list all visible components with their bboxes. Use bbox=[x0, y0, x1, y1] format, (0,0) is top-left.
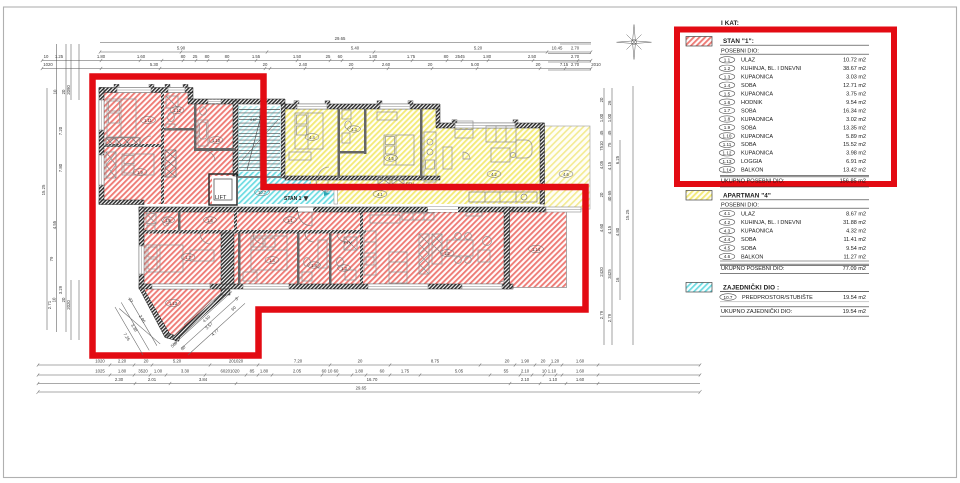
svg-text:4.2: 4.2 bbox=[724, 220, 731, 225]
svg-text:20: 20 bbox=[536, 62, 541, 67]
svg-text:5.20: 5.20 bbox=[173, 359, 182, 364]
svg-text:1.4: 1.4 bbox=[724, 83, 731, 88]
svg-text:38.67 m2: 38.67 m2 bbox=[843, 66, 866, 72]
svg-text:16.70: 16.70 bbox=[367, 377, 378, 382]
svg-text:1.13: 1.13 bbox=[169, 301, 178, 306]
svg-text:10.45: 10.45 bbox=[552, 46, 563, 51]
svg-text:1.14: 1.14 bbox=[532, 247, 541, 252]
svg-text:POSEBNI DIO:: POSEBNI DIO: bbox=[721, 202, 759, 208]
svg-text:15.25: 15.25 bbox=[41, 184, 46, 195]
svg-text:1.90: 1.90 bbox=[521, 359, 530, 364]
svg-text:2420: 2420 bbox=[599, 267, 604, 277]
svg-text:20: 20 bbox=[428, 62, 433, 67]
svg-text:55: 55 bbox=[504, 369, 509, 374]
svg-text:7.15: 7.15 bbox=[560, 62, 569, 67]
svg-text:PTV: PTV bbox=[344, 240, 352, 245]
svg-text:1.80: 1.80 bbox=[483, 54, 492, 59]
svg-text:1.10: 1.10 bbox=[723, 134, 732, 139]
svg-text:25: 25 bbox=[326, 54, 331, 59]
svg-text:60: 60 bbox=[338, 54, 343, 59]
svg-text:10.7: 10.7 bbox=[258, 190, 267, 195]
svg-text:1.10: 1.10 bbox=[212, 138, 221, 143]
svg-text:1.60: 1.60 bbox=[137, 54, 146, 59]
svg-text:20: 20 bbox=[144, 359, 149, 364]
svg-text:20: 20 bbox=[599, 97, 604, 102]
svg-text:4.6: 4.6 bbox=[724, 254, 731, 259]
svg-text:ULAZ: ULAZ bbox=[741, 211, 756, 217]
svg-text:31.88 m2: 31.88 m2 bbox=[843, 220, 866, 226]
svg-text:8.75: 8.75 bbox=[431, 359, 440, 364]
svg-text:3425: 3425 bbox=[607, 269, 612, 279]
svg-text:1.80: 1.80 bbox=[355, 369, 364, 374]
svg-text:4.1: 4.1 bbox=[724, 211, 731, 216]
svg-text:1.11: 1.11 bbox=[144, 118, 152, 123]
svg-text:1.5: 1.5 bbox=[724, 91, 731, 96]
svg-text:2090: 2090 bbox=[66, 85, 71, 95]
svg-text:11.41 m2: 11.41 m2 bbox=[843, 237, 866, 243]
svg-text:KUPAONICA: KUPAONICA bbox=[741, 151, 773, 157]
svg-text:1.8: 1.8 bbox=[724, 117, 731, 122]
svg-text:4.05: 4.05 bbox=[599, 160, 604, 169]
svg-text:1.13: 1.13 bbox=[723, 159, 732, 164]
svg-text:10.7: 10.7 bbox=[724, 295, 733, 300]
svg-text:SOBA: SOBA bbox=[741, 125, 757, 131]
svg-text:4.5: 4.5 bbox=[724, 246, 731, 251]
svg-text:4.15: 4.15 bbox=[607, 225, 612, 234]
svg-text:19.54 m2: 19.54 m2 bbox=[843, 309, 866, 315]
svg-text:UKUPNO POSEBNI DIO:: UKUPNO POSEBNI DIO: bbox=[721, 178, 785, 184]
svg-text:4.3: 4.3 bbox=[351, 127, 357, 132]
svg-text:4.2: 4.2 bbox=[491, 172, 497, 177]
svg-text:SOBA: SOBA bbox=[741, 246, 757, 252]
svg-text:10: 10 bbox=[53, 89, 58, 94]
svg-text:5.20: 5.20 bbox=[474, 46, 483, 51]
svg-text:9.54 m2: 9.54 m2 bbox=[846, 246, 866, 252]
svg-text:UKUPNO POSEBNI DIO:: UKUPNO POSEBNI DIO: bbox=[721, 266, 785, 272]
svg-text:I KAT:: I KAT: bbox=[721, 20, 739, 27]
svg-text:1.9: 1.9 bbox=[137, 170, 143, 175]
svg-text:2.79: 2.79 bbox=[607, 313, 612, 322]
svg-text:KUPAONICA: KUPAONICA bbox=[741, 134, 773, 140]
svg-text:1.9: 1.9 bbox=[724, 125, 731, 130]
svg-text:1.20: 1.20 bbox=[551, 359, 560, 364]
svg-text:3.03 m2: 3.03 m2 bbox=[846, 75, 866, 81]
svg-text:1.60: 1.60 bbox=[576, 377, 585, 382]
svg-text:20: 20 bbox=[349, 62, 354, 67]
svg-text:7.80: 7.80 bbox=[58, 163, 63, 172]
svg-text:20: 20 bbox=[358, 359, 363, 364]
svg-text:45: 45 bbox=[607, 130, 612, 135]
svg-text:77.09 m2: 77.09 m2 bbox=[843, 266, 866, 272]
svg-text:3.30: 3.30 bbox=[181, 369, 190, 374]
svg-text:1025: 1025 bbox=[95, 369, 105, 374]
svg-text:ZAJEDNIČKI DIO :: ZAJEDNIČKI DIO : bbox=[723, 282, 779, 291]
svg-text:13.35 m2: 13.35 m2 bbox=[843, 125, 866, 131]
svg-text:16: 16 bbox=[615, 277, 620, 282]
svg-text:25: 25 bbox=[193, 54, 198, 59]
svg-text:2020: 2020 bbox=[66, 300, 71, 310]
svg-text:4.1: 4.1 bbox=[377, 192, 383, 197]
svg-text:1.3: 1.3 bbox=[341, 266, 347, 271]
svg-text:1.80: 1.80 bbox=[260, 369, 269, 374]
svg-text:20: 20 bbox=[505, 359, 510, 364]
svg-text:29.65: 29.65 bbox=[356, 386, 367, 391]
svg-text:3.02 m2: 3.02 m2 bbox=[846, 117, 866, 123]
svg-text:1.55: 1.55 bbox=[252, 54, 261, 59]
svg-text:1.12: 1.12 bbox=[173, 108, 182, 113]
svg-text:11.27 m2: 11.27 m2 bbox=[843, 254, 866, 260]
svg-text:4.4: 4.4 bbox=[724, 237, 731, 242]
svg-text:LIFT: LIFT bbox=[215, 195, 227, 201]
svg-text:1.7: 1.7 bbox=[724, 108, 731, 113]
svg-text:1.3: 1.3 bbox=[724, 74, 731, 79]
svg-text:1.4: 1.4 bbox=[269, 258, 275, 263]
svg-text:80: 80 bbox=[225, 54, 230, 59]
svg-text:4.4: 4.4 bbox=[309, 135, 315, 140]
svg-text:1.50: 1.50 bbox=[293, 54, 302, 59]
svg-text:2.79: 2.79 bbox=[599, 310, 604, 319]
svg-text:KUPAONICA: KUPAONICA bbox=[741, 117, 773, 123]
svg-text:1.8: 1.8 bbox=[311, 263, 317, 268]
svg-text:KUPAONICA: KUPAONICA bbox=[741, 75, 773, 81]
svg-text:1.14: 1.14 bbox=[723, 167, 732, 172]
svg-text:POSEBNI DIO:: POSEBNI DIO: bbox=[721, 48, 759, 54]
svg-text:1.11: 1.11 bbox=[723, 142, 732, 147]
svg-text:1.60: 1.60 bbox=[576, 359, 585, 364]
svg-text:2.20: 2.20 bbox=[118, 359, 127, 364]
svg-text:3.29: 3.29 bbox=[58, 285, 63, 294]
svg-text:20: 20 bbox=[263, 62, 268, 67]
svg-text:5.05: 5.05 bbox=[455, 369, 464, 374]
svg-text:5.40: 5.40 bbox=[351, 46, 360, 51]
svg-text:KUHINJA, BL. I DNEVNI: KUHINJA, BL. I DNEVNI bbox=[741, 220, 802, 226]
svg-text:STAN 1: STAN 1 bbox=[284, 196, 302, 202]
svg-text:1.6: 1.6 bbox=[207, 218, 213, 223]
svg-text:1.1: 1.1 bbox=[287, 218, 293, 223]
svg-text:BALKON: BALKON bbox=[741, 254, 763, 260]
svg-text:5.90: 5.90 bbox=[177, 46, 186, 51]
svg-text:SOBA: SOBA bbox=[741, 142, 757, 148]
svg-text:1.80: 1.80 bbox=[118, 369, 127, 374]
svg-text:1.12: 1.12 bbox=[723, 150, 732, 155]
svg-text:1.5: 1.5 bbox=[165, 218, 171, 223]
svg-text:2.50: 2.50 bbox=[528, 54, 537, 59]
svg-text:4.80: 4.80 bbox=[615, 227, 620, 236]
svg-text:2.10: 2.10 bbox=[521, 369, 530, 374]
svg-text:75: 75 bbox=[607, 142, 612, 147]
svg-text:10 1.10: 10 1.10 bbox=[542, 369, 557, 374]
svg-text:2.70: 2.70 bbox=[571, 54, 580, 59]
svg-text:2010: 2010 bbox=[591, 62, 601, 67]
svg-text:26: 26 bbox=[607, 100, 612, 105]
svg-text:8.67 m2: 8.67 m2 bbox=[846, 211, 866, 217]
svg-text:KUHINJA, BL. I DNEVNI: KUHINJA, BL. I DNEVNI bbox=[741, 66, 802, 72]
svg-text:1.80: 1.80 bbox=[369, 54, 378, 59]
svg-text:5.30: 5.30 bbox=[150, 62, 159, 67]
svg-text:6.25: 6.25 bbox=[615, 155, 620, 164]
svg-text:15.52 m2: 15.52 m2 bbox=[843, 142, 866, 148]
svg-text:7.20: 7.20 bbox=[58, 126, 63, 135]
svg-text:1.80: 1.80 bbox=[97, 54, 106, 59]
svg-text:3.98 m2: 3.98 m2 bbox=[846, 151, 866, 157]
svg-text:45: 45 bbox=[599, 130, 604, 135]
svg-text:2.05: 2.05 bbox=[293, 369, 302, 374]
svg-text:1.00: 1.00 bbox=[607, 113, 612, 122]
svg-text:2.40: 2.40 bbox=[299, 62, 308, 67]
svg-text:3.84: 3.84 bbox=[199, 377, 208, 382]
svg-text:2.01: 2.01 bbox=[148, 377, 157, 382]
svg-text:1.1: 1.1 bbox=[724, 58, 731, 63]
svg-text:5.89 m2: 5.89 m2 bbox=[846, 134, 866, 140]
svg-text:STAN "1":: STAN "1": bbox=[723, 38, 754, 45]
svg-text:1.60: 1.60 bbox=[576, 369, 585, 374]
svg-text:12.71 m2: 12.71 m2 bbox=[843, 83, 866, 89]
svg-text:60 10 60: 60 10 60 bbox=[322, 369, 339, 374]
svg-text:3.75 m2: 3.75 m2 bbox=[846, 92, 866, 98]
svg-text:60: 60 bbox=[380, 369, 385, 374]
svg-text:ULAZ: ULAZ bbox=[741, 58, 756, 64]
svg-text:1.75: 1.75 bbox=[401, 369, 410, 374]
svg-text:1.75: 1.75 bbox=[407, 54, 416, 59]
svg-text:2545: 2545 bbox=[455, 54, 465, 59]
svg-text:10: 10 bbox=[51, 297, 56, 302]
svg-text:20: 20 bbox=[599, 192, 604, 197]
svg-text:SOBA: SOBA bbox=[741, 83, 757, 89]
svg-text:KUPAONICA: KUPAONICA bbox=[741, 92, 773, 98]
svg-text:SOBA: SOBA bbox=[741, 237, 757, 243]
svg-text:20: 20 bbox=[541, 359, 546, 364]
svg-text:5.00: 5.00 bbox=[471, 62, 480, 67]
svg-text:156.85 m2: 156.85 m2 bbox=[840, 178, 866, 184]
svg-text:HODNIK: HODNIK bbox=[741, 100, 763, 106]
svg-text:SOBA: SOBA bbox=[741, 108, 757, 114]
svg-text:4.32 m2: 4.32 m2 bbox=[846, 229, 866, 235]
svg-text:85: 85 bbox=[250, 369, 255, 374]
svg-text:80: 80 bbox=[181, 54, 186, 59]
svg-text:2.70: 2.70 bbox=[571, 62, 580, 67]
svg-text:4.15: 4.15 bbox=[607, 161, 612, 170]
svg-text:4.5: 4.5 bbox=[388, 156, 394, 161]
svg-text:4.55: 4.55 bbox=[52, 220, 57, 229]
svg-text:2.30: 2.30 bbox=[115, 377, 124, 382]
svg-text:19.54 m2: 19.54 m2 bbox=[843, 295, 866, 301]
svg-text:10: 10 bbox=[44, 54, 49, 59]
svg-text:80: 80 bbox=[205, 54, 210, 59]
svg-text:4.67: 4.67 bbox=[250, 118, 257, 122]
svg-text:1020: 1020 bbox=[95, 359, 105, 364]
svg-text:9.54 m2: 9.54 m2 bbox=[846, 100, 866, 106]
svg-text:2.70: 2.70 bbox=[571, 46, 580, 51]
svg-text:4.3: 4.3 bbox=[724, 228, 731, 233]
svg-text:PREDPROSTOR/STUBIŠTE: PREDPROSTOR/STUBIŠTE bbox=[742, 294, 813, 301]
svg-text:BALKON: BALKON bbox=[741, 168, 763, 174]
svg-text:1.7: 1.7 bbox=[185, 255, 191, 260]
svg-text:7510: 7510 bbox=[599, 141, 604, 151]
svg-text:KUPAONICA: KUPAONICA bbox=[741, 229, 773, 235]
svg-text:APARTMAN "4": APARTMAN "4" bbox=[723, 193, 771, 200]
svg-text:3520: 3520 bbox=[138, 369, 148, 374]
svg-text:201020: 201020 bbox=[229, 359, 244, 364]
svg-text:29.65: 29.65 bbox=[335, 36, 346, 41]
svg-text:13.42 m2: 13.42 m2 bbox=[843, 168, 866, 174]
svg-text:1.00: 1.00 bbox=[599, 113, 604, 122]
svg-text:1.2: 1.2 bbox=[444, 251, 450, 256]
svg-text:60201020: 60201020 bbox=[220, 369, 240, 374]
svg-text:1.2: 1.2 bbox=[724, 66, 731, 71]
svg-text:16.34 m2: 16.34 m2 bbox=[843, 108, 866, 114]
svg-text:1020: 1020 bbox=[43, 62, 53, 67]
svg-text:79: 79 bbox=[49, 256, 54, 261]
svg-text:2.60: 2.60 bbox=[382, 62, 391, 67]
svg-text:4.60: 4.60 bbox=[599, 223, 604, 232]
svg-text:LOGGIA: LOGGIA bbox=[741, 159, 762, 165]
svg-text:1.6: 1.6 bbox=[724, 100, 731, 105]
svg-text:6.91 m2: 6.91 m2 bbox=[846, 159, 866, 165]
svg-text:4.6: 4.6 bbox=[563, 172, 569, 177]
svg-text:1.25: 1.25 bbox=[55, 54, 64, 59]
svg-text:7.20: 7.20 bbox=[294, 359, 303, 364]
svg-text:2.10: 2.10 bbox=[521, 377, 530, 382]
svg-text:80: 80 bbox=[444, 54, 449, 59]
svg-text:40 65: 40 65 bbox=[607, 190, 612, 201]
svg-text:1.10: 1.10 bbox=[549, 377, 558, 382]
svg-text:UKUPNO ZAJEDNIČKI DIO:: UKUPNO ZAJEDNIČKI DIO: bbox=[721, 308, 793, 315]
svg-text:10.72 m2: 10.72 m2 bbox=[843, 58, 866, 64]
svg-text:1.00: 1.00 bbox=[154, 369, 163, 374]
svg-text:15.25: 15.25 bbox=[625, 209, 630, 220]
